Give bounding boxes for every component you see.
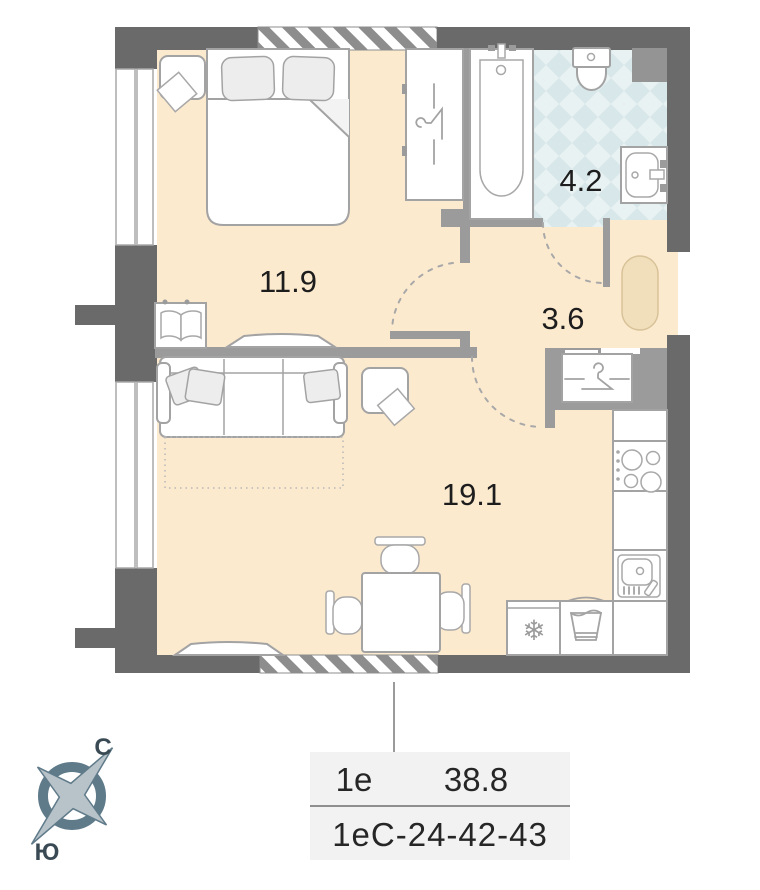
room-area-label-bathroom: 4.2 <box>559 163 602 198</box>
window-upper <box>116 69 153 245</box>
neighbor-section-hatch-top <box>258 27 437 50</box>
tv-living <box>175 642 283 655</box>
bathroom-door-threshold <box>543 218 603 227</box>
cushion <box>303 369 340 403</box>
sofa-armrest <box>157 363 170 423</box>
tv-bedroom <box>227 334 335 347</box>
room-area-label-living: 19.1 <box>442 477 502 512</box>
snowflake-icon: ❄ <box>522 614 545 647</box>
compass-south-label: Ю <box>35 839 60 866</box>
pillow <box>221 56 274 101</box>
compass-star <box>0 719 147 873</box>
dining-table <box>362 573 440 652</box>
sofa <box>157 357 347 437</box>
chair-seat <box>333 597 362 634</box>
chair-back <box>375 537 425 545</box>
facade-fin-lower <box>75 628 115 648</box>
bathtub <box>470 44 533 219</box>
double-bed <box>207 49 349 225</box>
fridge: ❄ <box>507 601 560 655</box>
hall-closet <box>562 354 632 402</box>
window-lower <box>116 382 153 568</box>
compass: С Ю <box>0 719 147 873</box>
oval-rug <box>622 256 658 330</box>
facade-fin-upper <box>75 305 115 325</box>
bedroom-wardrobe <box>402 49 463 200</box>
legend-apartment-code: 1еС-24-42-43 <box>332 816 548 853</box>
room-area-label-hallway: 3.6 <box>541 301 584 336</box>
kitchen-counter <box>613 410 667 655</box>
room-area-label-bedroom: 11.9 <box>259 264 317 299</box>
floor-plan-canvas: ❄ <box>0 0 760 890</box>
bookshelf <box>155 300 206 349</box>
chair-seat <box>381 545 419 574</box>
bathroom-sink <box>621 147 667 203</box>
vent-shaft <box>632 48 667 82</box>
kitchen-sink-icon <box>618 555 660 597</box>
legend-layout: 1е <box>336 761 373 798</box>
legend-total-area: 38.8 <box>444 761 508 798</box>
cushion <box>185 368 226 405</box>
neighbor-section-hatch-bottom <box>260 655 438 673</box>
legend: 1е 38.8 1еС-24-42-43 <box>310 682 570 860</box>
washing-machine <box>560 598 613 656</box>
book-icon <box>161 311 201 340</box>
pillow <box>282 56 334 101</box>
floor-plan: ❄ <box>0 0 760 890</box>
compass-north-label: С <box>94 734 111 761</box>
